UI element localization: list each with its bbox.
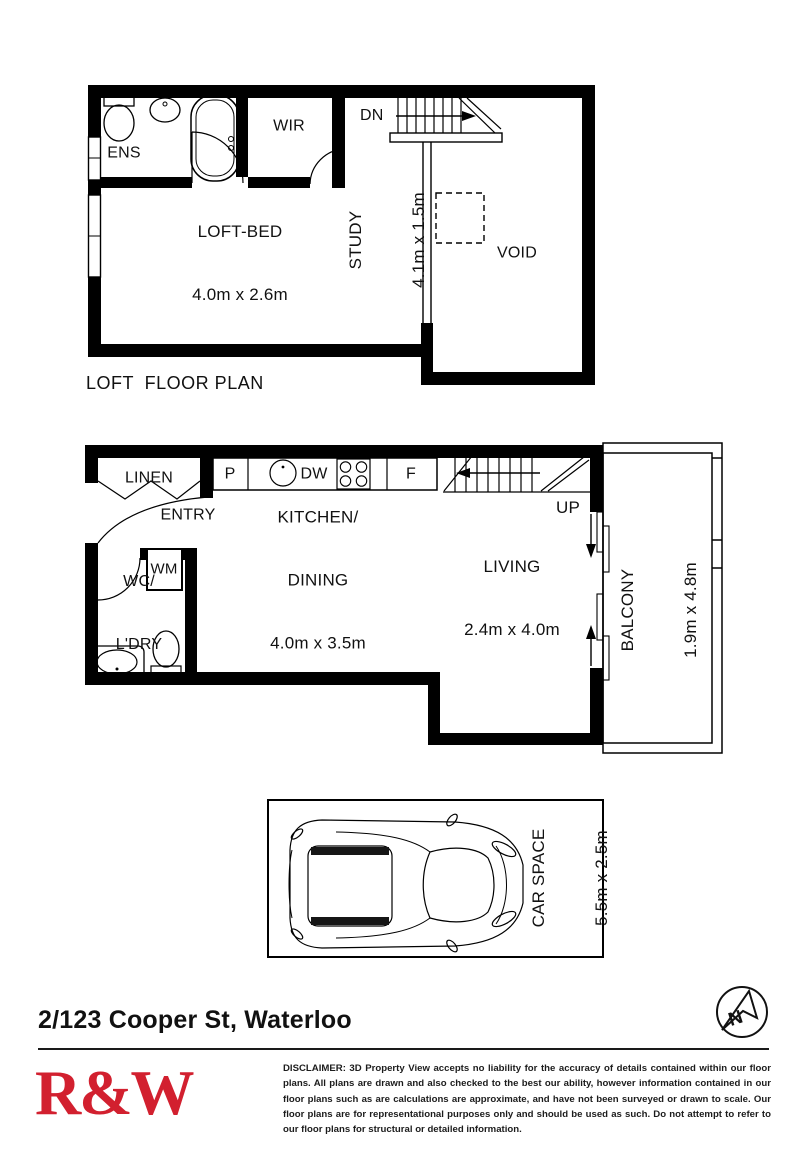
north-compass-icon: N: [717, 987, 767, 1037]
room-name: WC/: [116, 571, 162, 592]
room-label-study: STUDY 4.1m x 1.5m: [303, 192, 471, 288]
sliding-panel: [597, 512, 603, 552]
ens-basin-tap: [163, 102, 167, 106]
room-name: LIVING: [464, 556, 560, 577]
bath-tap: [229, 137, 234, 142]
room-dims: 5.5m x 2.5m: [591, 829, 612, 928]
footer-divider: [38, 1048, 769, 1050]
room-label-kitchen-dining: KITCHEN/ DINING 4.0m x 3.5m: [270, 465, 366, 696]
car-engine-hatch: [308, 846, 392, 926]
fixture-label-pantry: P: [225, 464, 236, 485]
slide-arrowhead-down: [586, 544, 596, 558]
room-dims: 4.1m x 1.5m: [408, 192, 429, 288]
room-label-entry: ENTRY: [161, 505, 216, 526]
room-label-balcony: BALCONY 1.9m x 4.8m: [575, 562, 743, 658]
room-name: CAR SPACE: [528, 829, 549, 928]
room-label-void: VOID: [497, 243, 537, 264]
room-name: L'DRY: [116, 634, 162, 655]
room-label-ens: ENS: [107, 143, 141, 164]
room-name: BALCONY: [617, 562, 638, 658]
ens-toilet-bowl: [104, 105, 134, 141]
room-dims: 4.0m x 3.5m: [270, 633, 366, 654]
main-stairs-arrowhead: [456, 468, 470, 478]
loft-left-windows: [88, 137, 101, 277]
room-name: STUDY: [345, 192, 366, 288]
room-dims: 1.9m x 4.8m: [680, 562, 701, 658]
car-mirror: [445, 812, 459, 827]
stairs-label-dn: DN: [360, 105, 384, 126]
car-vent-strip: [311, 917, 389, 925]
agency-logo: R&W: [35, 1056, 193, 1130]
room-label-wc-ldry: WC/ L'DRY: [116, 529, 162, 697]
ens-fixtures: [104, 95, 239, 181]
room-label-wir: WIR: [273, 116, 305, 137]
property-address: 2/123 Cooper St, Waterloo: [38, 1006, 352, 1035]
balcony-rail-mullions: [712, 458, 722, 568]
car-roof: [423, 848, 494, 922]
room-label-loft-bed: LOFT-BED 4.0m x 2.6m: [192, 179, 288, 347]
disclaimer-text: DISCLAIMER: 3D Property View accepts no …: [283, 1061, 771, 1137]
car-space-label: CAR SPACE 5.5m x 2.5m: [486, 829, 654, 928]
room-name: KITCHEN/: [270, 507, 366, 528]
room-dims: 4.0m x 2.6m: [192, 284, 288, 305]
room-name: DINING: [270, 570, 366, 591]
floor-plan-page: N ENS WIR DN LOFT-BED 4.0m x 2.6m STUDY …: [0, 0, 805, 1150]
room-label-living: LIVING 2.4m x 4.0m: [464, 514, 560, 682]
room-dims: 2.4m x 4.0m: [464, 619, 560, 640]
car-vent-strip: [311, 847, 389, 855]
closet-label-linen: LINEN: [125, 468, 173, 489]
loft-stairs-landing: [390, 133, 502, 142]
room-name: LOFT-BED: [192, 221, 288, 242]
loft-plan-caption: LOFT FLOOR PLAN: [86, 373, 264, 394]
fixture-label-fridge: F: [406, 464, 416, 485]
